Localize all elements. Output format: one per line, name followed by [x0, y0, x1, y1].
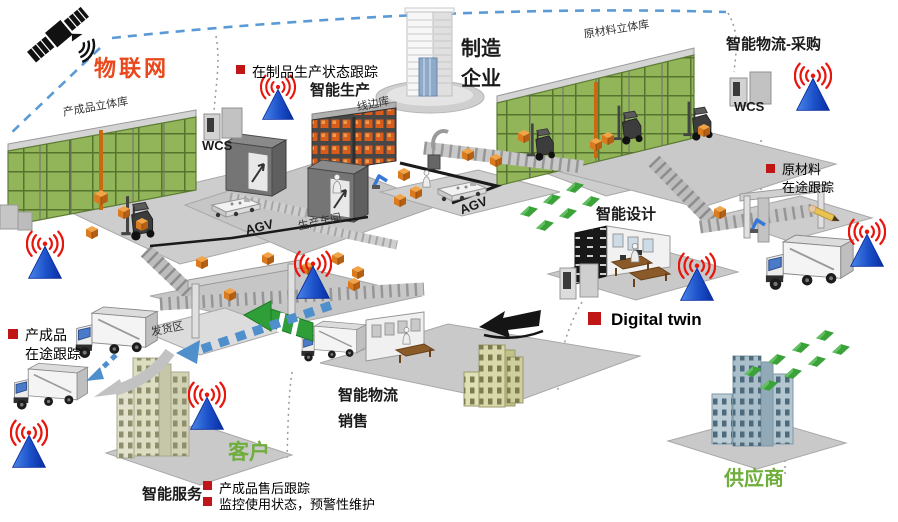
wireless-antenna-icon	[261, 76, 295, 120]
smart-logistics-sales-line2: 销售	[338, 409, 398, 435]
finished-goods-tracking-note: 产成品 在途跟踪	[8, 326, 81, 364]
blue-dashed-arrow-small	[86, 355, 116, 381]
red-square-bullet-icon	[588, 312, 601, 325]
customer-label: 客户	[228, 441, 270, 465]
iot-logistics-diagram: 物联网 产成品立体库 WCS 在制品生产状态跟踪 智能生产 线边库 制造 企业 …	[0, 0, 898, 522]
red-square-bullet-icon	[8, 329, 18, 339]
wireless-antenna-icon	[11, 421, 47, 468]
digital-twin-note: Digital twin	[588, 310, 702, 330]
wireless-antenna-icon	[295, 252, 331, 299]
smart-service-label: 智能服务	[142, 486, 202, 503]
truck-icon	[14, 363, 88, 409]
smart-production-label: 智能生产	[310, 82, 370, 99]
waste-bin	[428, 155, 440, 169]
monitoring-note: 监控使用状态，预警性维护	[203, 494, 375, 513]
red-square-bullet-icon	[203, 497, 212, 506]
monitoring-label: 监控使用状态，预警性维护	[219, 494, 375, 513]
person-icon	[423, 170, 430, 187]
digital-twin-label: Digital twin	[611, 310, 702, 330]
wireless-antenna-icon	[189, 383, 225, 430]
red-square-bullet-icon	[766, 164, 775, 173]
person-icon	[333, 174, 341, 193]
wip-tracking-note: 在制品生产状态跟踪	[236, 62, 378, 82]
raw-material-tracking-line2: 在途跟踪	[782, 179, 834, 197]
raw-material-tracking-note: 原材料 在途跟踪	[766, 161, 834, 196]
iot-label: 物联网	[94, 56, 169, 81]
person-icon	[403, 327, 410, 344]
raw-material-tracking-line1: 原材料	[782, 161, 834, 179]
finished-goods-tracking-line2: 在途跟踪	[25, 345, 81, 364]
red-square-bullet-icon	[203, 481, 212, 490]
supplier-label: 供应商	[724, 468, 784, 491]
smart-design-label: 智能设计	[596, 206, 656, 223]
red-square-bullet-icon	[236, 65, 245, 74]
wcs-right-label: WCS	[734, 100, 764, 115]
truck-icon	[76, 307, 158, 358]
wcs-left-label: WCS	[202, 139, 232, 154]
manufacturer-label: 制造 企业	[461, 34, 501, 94]
smart-logistics-sales-label: 智能物流 销售	[338, 383, 398, 435]
truck-icon	[766, 235, 853, 290]
wip-tracking-label: 在制品生产状态跟踪	[252, 62, 378, 82]
wireless-antenna-icon	[849, 220, 885, 267]
finished-goods-tracking-line1: 产成品	[25, 326, 81, 345]
manufacturer-label-line2: 企业	[461, 64, 501, 94]
person-icon	[631, 243, 639, 262]
smart-logistics-sales-line1: 智能物流	[338, 383, 398, 409]
smart-logistics-procurement-label: 智能物流-采购	[726, 36, 821, 53]
cnc-machine-1	[226, 134, 286, 196]
satellite-icon	[25, 5, 95, 69]
manufacturer-label-line1: 制造	[461, 34, 501, 64]
wcs-cabinets-left	[204, 108, 242, 140]
wireless-antenna-icon	[795, 64, 831, 111]
wireless-antenna-icon	[27, 232, 63, 279]
